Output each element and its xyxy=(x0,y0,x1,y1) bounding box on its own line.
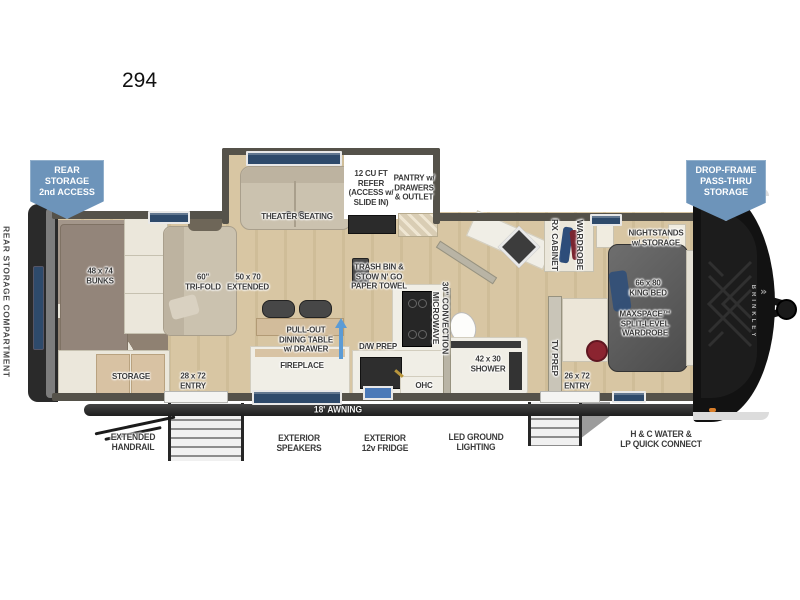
wall-top-right xyxy=(438,213,700,221)
storage-label: STORAGE xyxy=(112,372,150,382)
theater-label: THEATER SEATING xyxy=(261,212,332,222)
bunk-wardrobe-cabinet xyxy=(124,216,168,334)
bedroom-top-window xyxy=(590,214,622,226)
dw-prep-label: D/W PREP xyxy=(359,342,397,352)
kitchen-stool xyxy=(262,300,295,318)
cap-chevron-pattern xyxy=(701,210,757,398)
front-cap-brand-text: BRINKLEY xyxy=(750,285,756,340)
bunks-label: 48 x 74 BUNKS xyxy=(86,266,113,285)
awning-bar xyxy=(84,404,716,416)
wardrobe-label: WARDROBE xyxy=(574,220,584,271)
front-cap xyxy=(693,186,775,422)
speakers-label: EXTERIOR SPEAKERS xyxy=(276,433,321,453)
front-entry-door xyxy=(540,391,600,403)
shower-label: 42 x 30 SHOWER xyxy=(471,354,506,373)
kitchen-stool xyxy=(299,300,332,318)
rear-storage-compartment-label: REAR STORAGE COMPARTMENT xyxy=(2,226,11,422)
pantry-label: PANTRY w/ DRAWERS & OUTLET xyxy=(394,174,435,203)
pullout-arrow xyxy=(333,318,347,360)
floorplan-canvas: 294 xyxy=(0,0,800,600)
exterior-fridge-label: EXTERIOR 12v FRIDGE xyxy=(362,433,409,453)
water-connect-label: H & C WATER & LP QUICK CONNECT xyxy=(620,429,701,449)
floorplan-number: 294 xyxy=(122,70,157,91)
range-stove xyxy=(402,291,432,347)
rear-entry-door xyxy=(164,391,228,403)
refer-label: 12 CU FT REFER (ACCESS w/ SLIDE IN) xyxy=(349,169,394,207)
microwave-label: 30" CONVECTION MICROWAVE xyxy=(430,282,449,355)
nightstands-label: NIGHTSTANDS w/ STORAGE xyxy=(628,228,683,247)
awning-label: 18' AWNING xyxy=(314,406,362,415)
theater-window xyxy=(246,151,342,166)
ohc-label: OHC xyxy=(415,381,432,391)
led-lighting-label: LED GROUND LIGHTING xyxy=(449,432,504,452)
maxspace-label: MAXSPACE™ SPLIT-LEVEL WARDROBE xyxy=(620,310,671,339)
bedroom-bottom-window xyxy=(612,391,646,403)
kitchen-window xyxy=(252,390,342,405)
nightstand xyxy=(596,224,614,248)
tv-prep-label: TV PREP xyxy=(549,340,559,376)
bunk-window xyxy=(148,211,190,224)
king-bed-label: 66 x 80 KING BED xyxy=(629,278,667,297)
trifold-label: 60" TRI-FOLD xyxy=(185,272,221,291)
fireplace-label: FIREPLACE xyxy=(280,361,324,371)
pantry-shelves xyxy=(398,213,438,237)
front-entry-label: 26 x 72 ENTRY xyxy=(564,371,590,390)
kitchen-sink xyxy=(363,386,393,400)
trash-label: TRASH BIN & STOW N' GO PAPER TOWEL xyxy=(351,263,407,292)
handrail-label: EXTENDED HANDRAIL xyxy=(111,432,156,452)
extended-label: 50 x 70 EXTENDED xyxy=(227,272,269,291)
rx-cabinet-label: RX CABINET xyxy=(549,219,559,271)
decor-vase xyxy=(586,340,608,362)
rear-entry-label: 28 x 72 ENTRY xyxy=(180,371,206,390)
hitch-chevron-icon: » xyxy=(760,286,767,297)
rear-cap xyxy=(28,204,58,402)
bunk-bed xyxy=(60,224,128,354)
hitch-coupler xyxy=(776,299,797,320)
dining-label: PULL-OUT DINING TABLE w/ DRAWER xyxy=(279,326,333,355)
refrigerator xyxy=(348,215,396,234)
